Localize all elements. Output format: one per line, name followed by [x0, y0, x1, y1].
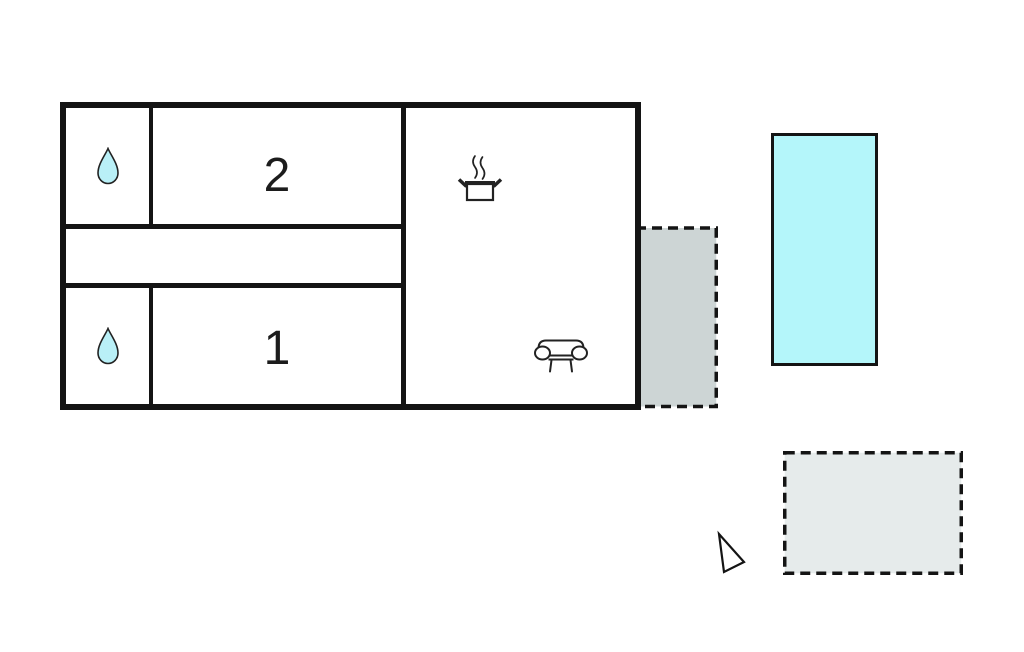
building-outline: 2 1 — [60, 102, 641, 410]
room-hallway — [66, 229, 401, 283]
room-bathroom-top — [66, 108, 149, 224]
swimming-pool — [771, 133, 878, 366]
room-living-kitchen — [406, 108, 635, 404]
terrace-detached — [783, 451, 963, 575]
sofa-icon — [534, 339, 588, 373]
water-drop-icon — [96, 147, 120, 185]
bedroom-1-label: 1 — [264, 325, 291, 373]
water-drop-icon — [96, 327, 120, 365]
room-bathroom-bottom — [66, 288, 149, 404]
north-arrow-icon — [712, 527, 748, 577]
terrace-attached — [636, 226, 720, 409]
cooking-pot-steam-icon — [457, 154, 503, 202]
room-bedroom-2: 2 — [153, 108, 401, 224]
floor-plan-canvas: 2 1 — [0, 0, 1024, 652]
bedroom-2-label: 2 — [264, 152, 291, 200]
room-bedroom-1: 1 — [153, 288, 401, 404]
